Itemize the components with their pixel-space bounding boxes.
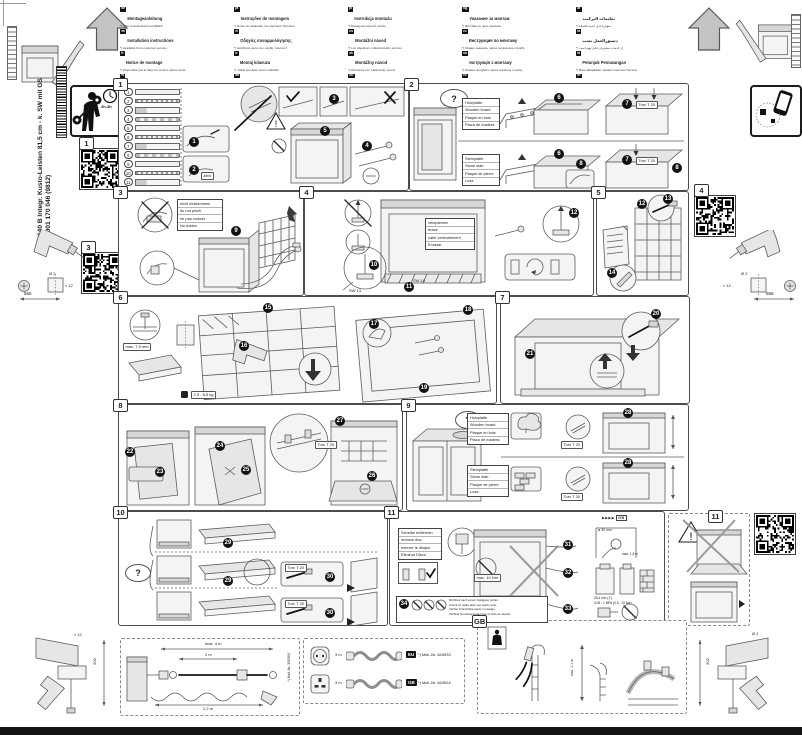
remove-disc-note: Scheibe entfernenremove disc enlever le … — [398, 528, 442, 560]
step-panel-1: 1 1234567891011 ! — [118, 83, 409, 191]
eu-socket-icon — [310, 646, 330, 666]
ruler-icon — [791, 14, 801, 68]
power-cord-icon — [346, 675, 402, 693]
torx-label: Torx T 20 — [561, 441, 583, 449]
language-title: Montageanleitung — [127, 16, 162, 21]
step-badge: 17 — [369, 319, 379, 329]
step-badge: 24 — [215, 441, 225, 451]
language-code-badge: el — [234, 29, 239, 34]
language-footnote: *) Можна придбати через сервісну службу — [462, 69, 572, 72]
language-title: Montážny náv­od — [355, 60, 387, 65]
language-title: Installation instructions — [127, 38, 173, 43]
language-code-badge: bg — [462, 7, 469, 12]
step-badge: 13 — [663, 194, 673, 204]
step-panel-4: 4 verspannenbrace caler verticalementE — [304, 191, 594, 296]
step-panel-8: 8 22 23 24 25 26 27 Torx T 20 — [118, 404, 403, 511]
language-entry: roInstrucţiuni de montaj*) Disponibile p… — [462, 74, 572, 81]
question-cloud: ? — [125, 564, 151, 582]
panel-number: 7 — [495, 291, 510, 304]
step-badge: 4 — [362, 141, 372, 151]
hole-diameter-label: ø 30 mm — [598, 528, 612, 532]
step-badge: 11 — [404, 282, 414, 292]
pilot-depth-label: ≈ 12 — [65, 283, 73, 288]
qr-label-11: 11 — [708, 510, 723, 523]
language-title: Інструкція з монтажу — [469, 60, 511, 65]
svg-text:!: ! — [275, 119, 278, 129]
brace-note: verspannenbrace caler verticalementEnras… — [425, 218, 475, 250]
language-code-badge: ru — [462, 29, 468, 34]
step-badge: 5 — [320, 126, 330, 136]
torx-label: Torx T 20 — [315, 441, 337, 449]
step-badge: 23 — [155, 467, 165, 477]
step-badge: 22 — [125, 447, 135, 457]
language-footnote: *) از خدمات مشتریان قابل تهیه است — [576, 47, 686, 50]
language-entry: daMonteringsvejledning*) Fås via service… — [234, 74, 344, 81]
door-warning-box: ! — [668, 513, 750, 626]
language-title: دستورالعمل نصب — [582, 38, 617, 43]
language-code-badge: pl — [348, 7, 353, 12]
language-code-badge: fa — [576, 29, 581, 34]
step-badge: 29 — [223, 538, 233, 548]
panel-number: 10 — [113, 506, 128, 519]
install-time: 2h-3h — [101, 104, 112, 109]
language-title: Instrukcja montażu — [354, 16, 391, 21]
hinge-screw-detail — [16, 628, 116, 724]
max-torque-label: max. 10 Nm — [474, 574, 501, 582]
torx-label: Torx T 20 — [561, 493, 583, 501]
screw-depth-label: max. 7,5 mm — [123, 343, 151, 351]
dimension-label: 566 — [24, 291, 32, 296]
do-not-pinch-note: nicht einklemmendo not pinch ne pas coin… — [177, 199, 223, 231]
language-footnote: *) متوفرة لدى خدمة العملاء — [576, 25, 686, 28]
step-badge: 21 — [525, 349, 535, 359]
language-entry: thคำแนะนำการติดตั้ง*) มีให้ที่ศูนย์บริกา… — [576, 74, 686, 81]
step-badge: 29 — [223, 576, 233, 586]
dimension-label: 566 — [766, 291, 774, 296]
klick-label: klick — [201, 172, 214, 180]
step-badge: 6 — [554, 93, 564, 103]
torx-label: Torx T 20 — [285, 564, 307, 572]
step-badge: 32 — [563, 568, 573, 578]
step-panel-11: 11 — [389, 511, 665, 626]
pilot-depth-label: ≈ 12 — [74, 632, 82, 637]
step-panel-6: 6 15 — [118, 296, 497, 404]
step-badge: 34 — [399, 599, 409, 609]
hose-mat-number: *) Mat.-Nr. 350564 — [287, 653, 291, 682]
language-footnote: *) Bisa didapatkan melalui Customer Serv… — [576, 69, 686, 72]
language-code-badge: en — [120, 29, 126, 34]
gb-box-label: GB — [472, 615, 487, 628]
smartphone-scan-icon — [750, 85, 802, 137]
language-column: arتعليمات التركيب*) متوفرة لدى خدمة العم… — [576, 7, 686, 81]
step-badge: 31 — [563, 540, 573, 550]
language-footnote: *) Disponible par le biais du service ap… — [120, 69, 230, 72]
panel-number: 11 — [384, 506, 399, 519]
step-badge: 3 — [329, 94, 339, 104]
step-badge: 15 — [263, 303, 273, 313]
order-number: 9001 170 046 (9812) — [45, 66, 52, 236]
gb-arrows: ▶▶▶▶ — [602, 516, 615, 520]
panel-number: 8 — [113, 399, 128, 412]
language-footnote: *) Διατίθεται μέσω του σέρβις πελατών — [234, 47, 344, 50]
panel-number: 2 — [404, 78, 419, 91]
language-column: deMontageanleitung*) Über Kundendienst e… — [120, 7, 230, 81]
step-badge: 14 — [607, 268, 617, 278]
step-badge: 7 — [622, 99, 632, 109]
language-entry: huSzerelési útmutató*) Az ügyfélszolgála… — [348, 74, 458, 81]
region-badge: EU — [406, 651, 416, 658]
gb-drain-box: GB max. 1,1 m — [477, 620, 687, 714]
step-badge: 16 — [239, 341, 249, 351]
language-code-badge: tr — [234, 51, 239, 56]
crop-mark — [0, 3, 26, 4]
language-code-badge: ro — [462, 74, 468, 79]
language-footnote: *) Dostępna poprzez serwis — [348, 25, 458, 28]
door-weight-label: 2,5 - 8,5 kg — [191, 391, 216, 399]
pencil-sketch-icon — [20, 30, 86, 88]
installer-time-icon: 2h-3h — [70, 85, 122, 137]
qr-label-4: 4 — [694, 184, 709, 197]
language-code-badge: da — [234, 74, 240, 79]
step-badge: 20 — [651, 309, 661, 319]
language-title: Notice de montage — [126, 60, 163, 65]
language-entry: trMontaj kılavuzu*) Yetkili servisten te… — [234, 51, 344, 72]
dimension-label: 502 — [92, 658, 97, 665]
adapter-size-label: 25,4 mm (1") — [594, 596, 612, 600]
language-entry: ruИнструкция по монтажу*) Можно заказать… — [462, 29, 572, 50]
language-entry: idPetunjuk Pemasangan*) Bisa didapatkan … — [576, 51, 686, 72]
step-badge: 28 — [623, 408, 633, 418]
step-badge: 25 — [241, 465, 251, 475]
step-badge: 26 — [367, 471, 377, 481]
wood-board-note: HolzplatteWooden board Plaque en boisPla… — [462, 98, 500, 130]
step-badge: 8 — [576, 159, 586, 169]
step-badge: 7 — [622, 155, 632, 165]
step-badge: 33 — [563, 604, 573, 614]
language-title: Instruções de montagem — [241, 16, 289, 21]
ruler-icon — [7, 26, 17, 80]
language-footnote: *) Dostupný cez zákaznícky servis — [348, 69, 458, 72]
language-title: Petunjuk Pemasangan — [582, 60, 626, 65]
language-code-badge: th — [576, 74, 582, 79]
qr-label-1: 1 — [79, 137, 94, 150]
leak-note-line: Verificar la estanqueidad tras un ciclo … — [449, 612, 545, 617]
arrow-up-icon — [688, 6, 730, 52]
step-badge: 2 — [189, 165, 199, 175]
power-cord-icon — [346, 647, 402, 665]
stone-slab-note: SteinplatteStone slab Plaque de pierreLo… — [462, 154, 500, 186]
language-entry: csMontážní návod*) Lze objednat u zákazn… — [348, 29, 458, 50]
language-title: Montaj kılavuzu — [240, 60, 270, 65]
drill-diameter-label: Ø 2 — [752, 631, 758, 636]
language-entry: ptInstruções de montagem*) Pode ser adqu… — [234, 7, 344, 28]
cord-mat-number: *) Mat.-Nr. 644533 — [418, 652, 451, 657]
panel-number: 1 — [113, 78, 128, 91]
step-badge: 28 — [623, 458, 633, 468]
language-title: Montážní návod — [355, 38, 386, 43]
step-badge: 10 — [369, 260, 379, 270]
stone-slab-note: SteinplatteStone slab Plaque de pierreLo… — [467, 465, 509, 497]
language-code-badge: pt — [234, 7, 240, 12]
wrench-size-label: SW 10 — [413, 278, 425, 283]
step-badge: 9 — [231, 226, 241, 236]
step-badge: 19 — [419, 383, 429, 393]
language-code-badge: sk — [348, 51, 354, 56]
panel-number: 3 — [113, 186, 128, 199]
torx-label: Torx T 20 — [636, 101, 658, 109]
language-column: bgУказание за монтаж*) Доставя се чрез с… — [462, 7, 572, 81]
step-badge: 12 — [569, 208, 579, 218]
wood-board-note: HolzplatteWooden board Plaque en boisPla… — [467, 413, 509, 445]
wrench-size-label: SW 13 — [349, 288, 361, 293]
language-footnote: *) Über Kundendienst erhältlich — [120, 25, 230, 28]
qr-code-11 — [754, 513, 796, 555]
drill-diameter-label: Ø 2 — [49, 271, 55, 276]
language-entry: bgУказание за монтаж*) Доставя се чрез с… — [462, 7, 572, 28]
language-footnote: *) Можно заказать через сервисную службу — [462, 47, 572, 50]
svg-text:!: ! — [689, 531, 692, 543]
step-panel-2: 2 ? Hol — [409, 83, 689, 191]
drain-length-label: 2,2 m — [203, 706, 213, 711]
bottom-bar — [0, 727, 802, 735]
language-list: deMontageanleitung*) Über Kundendienst e… — [120, 7, 686, 81]
language-code-badge: ar — [576, 7, 582, 12]
panel-number: 4 — [299, 186, 314, 199]
qr-label-3: 3 — [81, 241, 96, 254]
step-panel-5: 5 12 13 14 — [596, 191, 689, 296]
hinge-screw-detail — [688, 628, 788, 724]
language-footnote: *) Yetkili servisten temin edilebilir — [234, 69, 344, 72]
panel-number: 5 — [591, 186, 606, 199]
torx-label: Torx T 20 — [285, 600, 307, 608]
cord-row-eu: 3 m EU *) Mat.-Nr. 644533 — [310, 645, 460, 669]
panel-number: 6 — [113, 291, 128, 304]
language-entry: nlMontagevoorschrift*) Te bestellen bij … — [120, 74, 230, 81]
cord-length: 3 m — [335, 652, 342, 657]
segment-length-label: 2 m — [205, 652, 212, 657]
step-panel-9: 9 ? HolzplatteWooden board — [406, 404, 689, 511]
drain-height-label: max. 1,1 m — [570, 659, 574, 676]
language-entry: frNotice de montage*) Disponible par le … — [120, 51, 230, 72]
gb-section-pointer: ▶▶▶▶ GB — [602, 516, 627, 520]
step-badge: 30 — [325, 608, 335, 618]
language-entry: ukІнструкція з монтажу*) Можна придбати … — [462, 51, 572, 72]
no-leak-icons — [411, 599, 447, 611]
step-badge: 8 — [672, 163, 682, 173]
gb-socket-icon — [310, 674, 330, 694]
cord-length: 3 m — [335, 680, 342, 685]
language-footnote: *) Lze objednat u zákaznického servisu — [348, 47, 458, 50]
language-entry: enInstallation instructions*) Available … — [120, 29, 230, 50]
step-badge: 12 — [637, 199, 647, 209]
cord-mat-number: *) Mat.-Nr. 644524 — [418, 680, 451, 685]
language-entry: arتعليمات التركيب*) متوفرة لدى خدمة العم… — [576, 7, 686, 28]
step-badge: 6 — [554, 149, 564, 159]
step-badge: 1 — [189, 137, 199, 147]
language-title: Инструкция по монтажу — [469, 38, 518, 43]
torx-label: Torx T 20 — [636, 157, 658, 165]
language-footnote: *) Available from customer service — [120, 47, 230, 50]
pencil-sketch-icon — [734, 10, 796, 64]
cord-row-gb: 3 m GB *) Mat.-Nr. 644524 — [310, 673, 460, 697]
barcode — [56, 66, 67, 138]
step-panel-3: 3 nicht einklemmendo not pinch ne pas co… — [118, 191, 304, 296]
model-number: 640 B Integr. Kusto-Leisten 81,5 cm - k.… — [37, 66, 44, 236]
language-title: تعليمات التركيب — [583, 16, 615, 21]
language-footnote: *) Доставя се чрез сервиза — [462, 25, 572, 28]
qr-code-1 — [79, 148, 121, 190]
language-column: plInstrukcja montażu*) Dostępna poprzez … — [348, 7, 458, 81]
pilot-depth-label: ≈ 12 — [723, 283, 731, 288]
dimension-label: 502 — [705, 658, 710, 665]
language-entry: plInstrukcja montażu*) Dostępna poprzez … — [348, 7, 458, 28]
language-title: Указание за монтаж — [470, 16, 510, 21]
language-code-badge: cs — [348, 29, 354, 34]
model-text: 640 B Integr. Kusto-Leisten 81,5 cm - k.… — [37, 66, 52, 236]
drill-diameter-label: Ø 2 — [741, 271, 747, 276]
installation-sheet: 640 B Integr. Kusto-Leisten 81,5 cm - k.… — [0, 0, 802, 735]
language-entry: elΟδηγίες συναρμολόγησης*) Διατίθεται μέ… — [234, 29, 344, 50]
language-entry: deMontageanleitung*) Über Kundendienst e… — [120, 7, 230, 28]
hose-height-label: max. 1,5 m — [622, 552, 638, 556]
step-badge: 18 — [463, 305, 473, 315]
step-panel-7: 7 20 21 — [500, 296, 690, 404]
max-length-label: max. 4 m — [205, 641, 221, 646]
language-code-badge: uk — [462, 51, 468, 56]
gb-flag-label: GB — [616, 515, 626, 521]
step-panel-10: 10 ? 29 29 — [118, 511, 388, 626]
water-pressure-label: 0,05 - 1 MPa (0,5 - 10 bar) — [594, 601, 632, 605]
language-code-badge: id — [576, 51, 581, 56]
panel-number: 9 — [401, 399, 416, 412]
language-entry: skMontážny náv­od*) Dostupný cez zákazní… — [348, 51, 458, 72]
language-code-badge: de — [120, 7, 126, 12]
language-title: Οδηγίες συναρμολόγησης — [240, 38, 291, 43]
language-code-badge: fr — [120, 51, 125, 56]
language-entry: faدستورالعمل نصب*) از خدمات مشتریان قابل… — [576, 29, 686, 50]
region-badge: GB — [406, 679, 417, 686]
language-column: ptInstruções de montagem*) Pode ser adqu… — [234, 7, 344, 81]
language-footnote: *) Pode ser adquirido nos Serviços Técni… — [234, 25, 344, 28]
language-code-badge: hu — [348, 74, 355, 79]
step-badge: 30 — [325, 572, 335, 582]
step-badge: 27 — [335, 416, 345, 426]
hose-extension-box: max. 4 m 2 m 2,2 m *) Mat.-Nr. 350564 — [120, 638, 300, 716]
drill-pilot-hole-icon — [700, 230, 800, 302]
power-cord-box: 3 m EU *) Mat.-Nr. 644533 3 m GB *) Mat.… — [303, 638, 465, 704]
